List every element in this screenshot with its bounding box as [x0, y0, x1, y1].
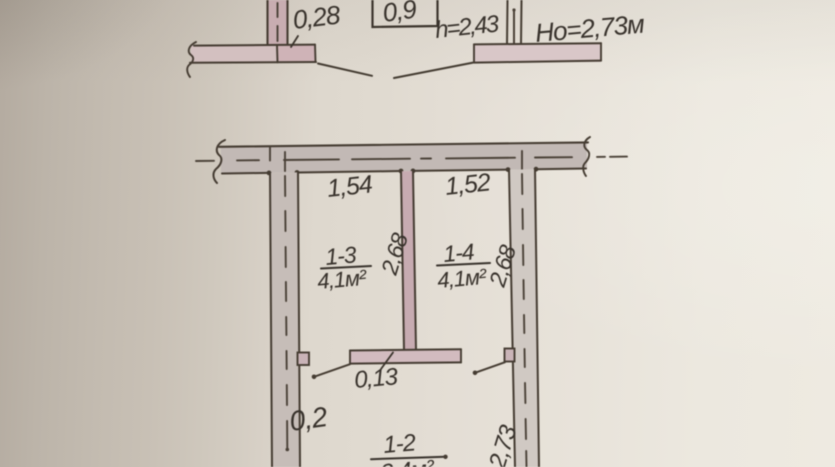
svg-text:1-2: 1-2 — [382, 429, 417, 459]
svg-text:0,9: 0,9 — [381, 0, 419, 28]
svg-text:1-4: 1-4 — [442, 238, 475, 267]
svg-text:4,1м²: 4,1м² — [436, 264, 488, 293]
svg-text:0,13: 0,13 — [353, 363, 400, 394]
svg-text:0,28: 0,28 — [291, 0, 342, 35]
svg-text:Но=2,73м: Но=2,73м — [534, 9, 646, 48]
svg-text:1,54: 1,54 — [326, 170, 373, 203]
svg-text:h=2,43: h=2,43 — [434, 10, 501, 44]
svg-text:1,52: 1,52 — [444, 168, 492, 201]
svg-text:0,2: 0,2 — [288, 401, 330, 437]
svg-text:4,1м²: 4,1м² — [316, 265, 368, 294]
